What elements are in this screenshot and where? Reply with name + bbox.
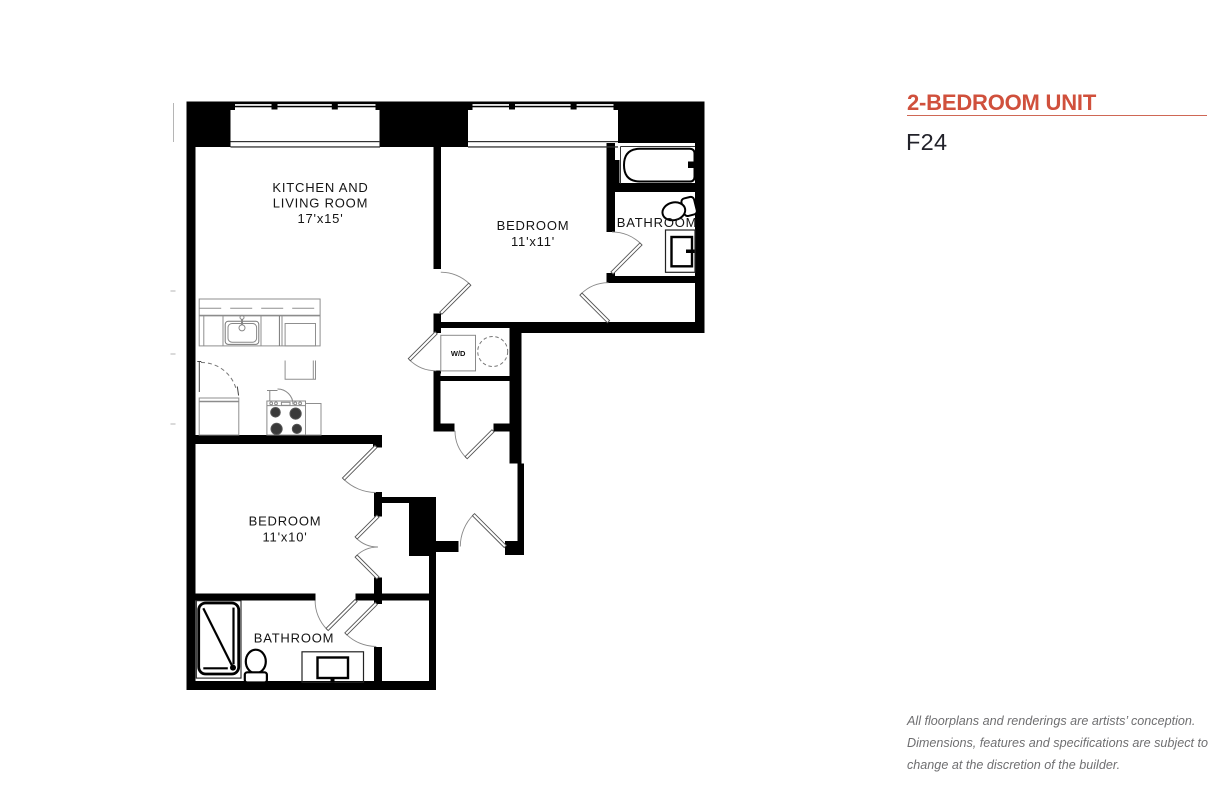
- svg-text:BATHROOM: BATHROOM: [254, 631, 335, 646]
- svg-text:BEDROOM: BEDROOM: [497, 218, 570, 233]
- svg-text:11'x10': 11'x10': [262, 530, 307, 545]
- svg-text:BATHROOM: BATHROOM: [617, 215, 698, 230]
- svg-text:LIVING ROOM: LIVING ROOM: [273, 196, 368, 211]
- svg-text:BEDROOM: BEDROOM: [249, 514, 322, 529]
- svg-text:11'x11': 11'x11': [511, 234, 555, 249]
- svg-text:17'x15': 17'x15': [298, 211, 344, 226]
- svg-text:KITCHEN AND: KITCHEN AND: [272, 180, 368, 195]
- svg-text:W/D: W/D: [451, 349, 466, 358]
